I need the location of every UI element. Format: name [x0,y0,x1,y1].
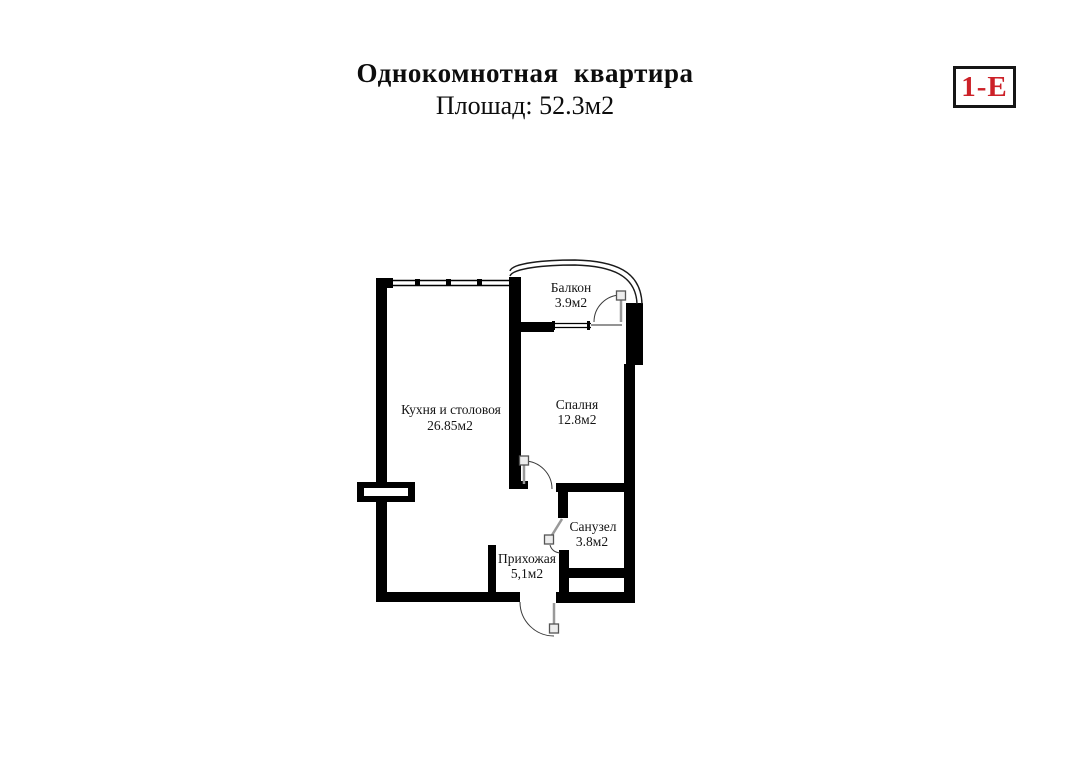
kitchen-window [391,279,509,286]
bathroom-door [545,519,563,553]
window-end-tick [552,321,555,330]
window-mullion [477,279,482,286]
wall-kitchen-bedroom [509,277,521,483]
wall-bathroom-left-upper [558,492,568,518]
bedroom-area: 12.8м2 [558,412,597,427]
bathroom-area: 3.8м2 [576,534,608,549]
balcony-area: 3.9м2 [555,295,587,310]
door-hinge-icon [545,535,554,544]
hallway-label: Прихожая [498,551,556,566]
balcony-window [552,321,591,330]
wall-balcony-pillar [626,303,643,365]
balcony-door [594,291,626,322]
wall-top-left-corner [376,278,393,288]
wall-bathroom-bottom [559,568,628,578]
floorplan-drawing: Балкон 3.9м2 Кухня и столовоя 26.85м2 Сп… [0,0,1080,763]
wall-left [376,278,387,602]
hallway-area: 5,1м2 [511,566,543,581]
bathroom-label: Санузел [569,519,616,534]
door-hinge-icon [520,456,529,465]
balcony-label: Балкон [551,280,591,295]
window-mullion [415,279,420,286]
window-mullion [446,279,451,286]
wall-bottom-left [376,592,520,602]
kitchen-label: Кухня и столовоя [401,402,501,417]
door-hinge-icon [617,291,626,300]
wall-bathroom-top [556,483,635,492]
window-end-tick [587,321,590,330]
wall-pilaster [357,482,415,502]
floorplan-page: Однокомнотная квартира Плошад: 52.3м2 1-… [0,0,1080,763]
door-hinge-icon [550,624,559,633]
wall-hallway-stub [488,545,496,602]
bedroom-label: Спалня [556,397,599,412]
kitchen-area: 26.85м2 [427,418,473,433]
entrance-door [520,602,559,636]
wall-balcony-separator [509,322,554,332]
